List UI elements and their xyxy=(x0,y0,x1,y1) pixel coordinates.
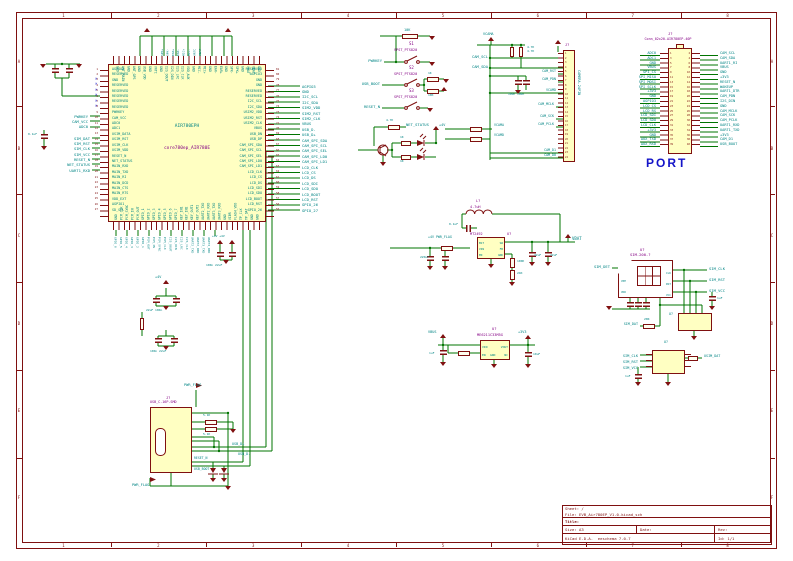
capacitor xyxy=(466,225,471,232)
port-part: Conn_02x20-AIR780EP-40P xyxy=(613,38,723,42)
power-label: +4V xyxy=(439,123,445,127)
gnd-symbol xyxy=(163,306,169,310)
title-block-title: Title: xyxy=(565,519,579,524)
net-label-stack-rotated: UART3_RXD UART3_TXD UART2_RXD UART2_TXD … xyxy=(112,237,211,271)
port-pin-numbers-right: 2 4 6 8 10 12 14 16 18 20 22 24 26 28 30… xyxy=(682,52,690,148)
gnd-symbol xyxy=(488,264,494,268)
main-ic-pins-right xyxy=(266,70,274,217)
resistor-value: 24K xyxy=(517,272,522,275)
capacitor-values: 100n 100n xyxy=(508,93,524,96)
gnd-symbol xyxy=(225,28,231,32)
net-label-stack: AGPIO3 GND I2C_SCL I2C_SDA SIM2_VDD SIM2… xyxy=(302,84,327,214)
power-labels: +4V +4V xyxy=(212,235,225,238)
sim-inside-left: VPP VDD xyxy=(621,276,626,298)
net-label: CAM_MCLK xyxy=(528,103,554,107)
sim-esd-ref: U? xyxy=(669,313,673,317)
resistor xyxy=(441,246,453,251)
main-ic-pin-names-top: GND VBAT VBAT GND SPK+ SPK- GND EAR+ EAR… xyxy=(114,66,261,110)
net-label: SIM_DET xyxy=(586,265,610,269)
sim-esd-body xyxy=(678,313,712,331)
port-pins-left xyxy=(660,53,668,149)
resistor-value: 1K xyxy=(428,72,432,75)
power-flag-label: +4V PWR_FLAG xyxy=(428,236,452,240)
capacitor xyxy=(635,374,642,379)
resistor-value: 4.7K xyxy=(386,119,393,122)
title-block-id: Id: 1/1 xyxy=(718,536,734,541)
resistor xyxy=(643,324,655,329)
resistor xyxy=(205,427,217,432)
capacitor-value: 1uF xyxy=(429,352,434,355)
net-label: USB_D- xyxy=(238,453,250,457)
resistor xyxy=(140,318,144,330)
button-part: SPST_PTS820 xyxy=(394,95,417,99)
net-label-stack: SIM_DAT SIM_RST SIM_CLK SIM_VCC RESET_N … xyxy=(60,136,90,173)
ldo-ref: U? xyxy=(492,327,497,331)
port-title: PORT xyxy=(646,156,687,170)
net-label: SIM_RST xyxy=(709,278,725,282)
net-label: CAM_SDA xyxy=(458,65,488,69)
title-block-file: File: EVB_Air780EP_V1.0.kicad_sch xyxy=(565,512,642,517)
net-label-stack-rotated: SPK+ SPK- EAR+ EAR- MIC+ MIC- VRTC VBAT xyxy=(160,30,203,56)
simesd-ref: U? xyxy=(664,341,668,345)
camera-connector-pins xyxy=(558,53,563,161)
power-arrow xyxy=(440,334,446,338)
net-label: NET_STATUS xyxy=(406,123,429,127)
capacitor-values: 100n 22uF xyxy=(150,350,166,353)
gnd-symbol xyxy=(76,64,82,68)
net-label-stack: PWRKEY CAM_VCC ADC0 xyxy=(62,114,88,130)
net-label: CAM_PCLK xyxy=(528,123,554,127)
resistor xyxy=(510,258,515,268)
dcdc-ic-value: MT2492 xyxy=(470,232,483,236)
gnd-symbol xyxy=(442,266,448,270)
main-ic-pin-numbers-right: 81 80 79 78 77 76 75 74 73 72 71 70 69 6… xyxy=(276,67,279,213)
resistor-value: 20R xyxy=(644,318,649,321)
resistor xyxy=(388,125,400,130)
gnd-symbol xyxy=(529,262,535,266)
schematic-sheet: 12345678 12345678 ABCDEF ABCDEF xyxy=(0,0,793,561)
capacitor-value: 220uF xyxy=(420,256,429,259)
port-left-nets: ADC0 ADC1 GND VBUS SPI_CS SPI_MISO SPI_M… xyxy=(610,51,656,147)
port-right-nets: CAM_SCL CAM_SDA UART1_RI VBUS GND +3V3 R… xyxy=(720,51,739,147)
gnd-symbol xyxy=(210,478,216,482)
gnd-symbol xyxy=(440,362,446,366)
capacitor xyxy=(440,350,447,355)
gnd-symbol xyxy=(555,40,561,44)
net-label: CAM_SCL xyxy=(458,55,488,59)
capacitor-value: 22uF xyxy=(550,254,557,257)
inductor-value: 4.7uH xyxy=(470,205,481,209)
capacitor xyxy=(523,80,530,85)
gnd-symbol xyxy=(225,486,231,490)
net-label: CAM_D0 xyxy=(534,154,556,158)
gnd-symbol xyxy=(427,108,433,112)
power-flag-label: PWR_FLAG xyxy=(184,383,201,387)
resistor-value: 10K xyxy=(404,28,410,32)
resistor xyxy=(402,34,418,39)
capacitor-value: 0.1uF xyxy=(449,223,458,226)
gnd-symbol xyxy=(491,364,497,368)
gnd-symbol xyxy=(443,79,449,83)
net-label: USB_D+ xyxy=(232,443,244,447)
capacitor xyxy=(66,68,73,73)
gnd-symbol xyxy=(709,306,715,310)
resistor-values: 4.7K 4.7K xyxy=(527,46,534,54)
capacitor-values: 22uF 100n xyxy=(146,309,162,312)
power-arrow xyxy=(565,234,571,238)
button-part: SPST_PTS820 xyxy=(394,48,417,52)
gnd-symbol xyxy=(223,260,229,264)
ldo-pins-left: VIN EN xyxy=(482,343,487,359)
net-label: RESET_N xyxy=(354,105,380,109)
sim-inside-right: CLK RST VCC xyxy=(662,268,671,301)
button-ref: S2 xyxy=(409,66,414,71)
net-label: PWRKEY xyxy=(358,59,382,63)
sim-contact-grid xyxy=(637,266,661,286)
net-label: USIM_DAT xyxy=(704,355,720,359)
title-block-col-divider xyxy=(636,525,637,533)
capacitor-value: 1uF xyxy=(625,375,630,378)
capacitor xyxy=(171,338,178,343)
dcdc-pins-left: BST VIN EN xyxy=(479,240,484,258)
power-label: VCAMA xyxy=(483,32,494,36)
port-ref: J? xyxy=(668,32,673,36)
capacitor xyxy=(41,134,48,139)
capacitor xyxy=(515,80,522,85)
no-connect-marks: × × × × × × xyxy=(95,76,97,108)
net-label: VCAMA xyxy=(494,124,504,128)
main-ic-pins-top xyxy=(113,56,261,64)
net-label: USB_BOOT xyxy=(350,82,380,86)
title-block-row-divider xyxy=(562,533,770,534)
net-label: VCAMD xyxy=(494,134,504,138)
gnd-symbol xyxy=(380,162,386,166)
main-ic-pins-bottom xyxy=(113,222,261,230)
capacitor xyxy=(155,338,162,343)
gnd-symbol xyxy=(429,62,435,66)
button-ref: S3 xyxy=(409,89,414,94)
main-ic-name: AIR780EPH xyxy=(108,124,266,129)
gnd-symbol xyxy=(635,382,641,386)
resistor xyxy=(470,127,482,132)
power-arrow xyxy=(488,37,494,41)
title-block-date: Date: xyxy=(640,527,652,532)
capacitor xyxy=(442,256,449,261)
gnd-symbol xyxy=(691,336,697,340)
resistor-value: 1K xyxy=(400,136,404,139)
inductor-ref: L? xyxy=(476,199,480,203)
camera-pin-numbers: 1 2 3 4 5 6 7 8 9 10 11 12 13 14 15 16 1… xyxy=(565,52,568,160)
gnd-symbol xyxy=(221,478,227,482)
net-label-stack: SIM_CLK SIM_RST SIM_VCC xyxy=(606,353,638,371)
power-label: +4V xyxy=(155,275,161,279)
gnd-symbol xyxy=(144,28,150,32)
main-ic-value: core780ep_AIR780E xyxy=(108,146,266,151)
ldo-value: ME6211C33M5G xyxy=(477,333,503,337)
capacitor-value: 22uF xyxy=(534,254,541,257)
net-label: SIM_DAT xyxy=(614,323,638,327)
gnd-symbol xyxy=(665,382,671,386)
capacitor xyxy=(153,298,160,303)
main-ic-pins-left xyxy=(100,70,108,217)
resistor-value: 100K xyxy=(517,260,524,263)
capacitor xyxy=(709,296,716,301)
net-label: CAM_RST xyxy=(530,70,556,74)
gnd-symbol xyxy=(525,364,531,368)
button-ref: S1 xyxy=(409,42,414,47)
port-pin-numbers-left: 1 3 5 7 9 11 13 15 17 19 21 23 25 27 29 … xyxy=(670,52,673,148)
title-block-tool: KiCad E.D.A. eeschema 7.0.7 xyxy=(565,536,631,541)
resistor xyxy=(427,77,439,82)
net-label: RESET_N xyxy=(194,457,207,461)
gnd-symbol xyxy=(509,282,515,286)
sim-value: SIM-200-? xyxy=(630,253,651,257)
gnd-symbol xyxy=(230,429,236,433)
resistor xyxy=(510,270,515,280)
gnd-symbol xyxy=(545,262,551,266)
resistor xyxy=(458,351,470,356)
capacitor xyxy=(627,302,634,307)
resistor xyxy=(510,47,514,57)
net-label: VCAMD xyxy=(532,89,556,93)
capacitor-value: 10uF xyxy=(533,353,540,356)
capacitor-value: 0.1uF xyxy=(28,133,37,136)
capacitor xyxy=(635,302,642,307)
net-label: SIM_CLK xyxy=(709,267,725,271)
dcdc-pins-right: SW FB GND xyxy=(490,240,503,258)
title-block-row-divider xyxy=(562,525,770,526)
resistor xyxy=(401,141,411,146)
power-label: VBUS xyxy=(428,330,436,334)
net-label: USB_BOOT xyxy=(194,468,209,472)
resistor-value: 10K xyxy=(428,94,433,97)
resistor xyxy=(688,356,698,361)
title-block-row-divider xyxy=(562,517,770,518)
dcdc-ic-ref: U? xyxy=(507,232,511,236)
resistor xyxy=(519,47,523,57)
power-arrow xyxy=(525,335,531,339)
capacitor xyxy=(525,352,532,357)
main-ic-pin-names-bottom: GND PCM_CLK PCM_SYNC PCM_IN PCM_OUT GPIO… xyxy=(114,176,261,220)
ldo-pins-right: VOUT NC xyxy=(495,343,508,359)
usb-connector-outline xyxy=(155,428,166,456)
power-arrow xyxy=(441,87,447,91)
title-block-rev: Rev: xyxy=(718,527,727,532)
net-label: CAM_SCK xyxy=(530,115,554,119)
power-arrow xyxy=(163,280,169,284)
gnd-symbol xyxy=(41,146,47,150)
gnd-symbol xyxy=(40,64,46,68)
camera-ref: J? xyxy=(565,43,569,47)
resistor xyxy=(470,137,482,142)
gnd-symbol xyxy=(429,36,435,40)
capacitor-value: 1uF xyxy=(717,297,722,300)
power-label: VBAT xyxy=(572,237,582,242)
port-pins-right xyxy=(692,53,700,149)
simesd-pins-left xyxy=(646,354,652,368)
net-label: SIM_VCC xyxy=(709,289,725,293)
power-arrow xyxy=(229,240,235,244)
capacitor xyxy=(217,252,224,257)
ldo-pin-gnd: GND xyxy=(490,354,495,357)
simesd-body xyxy=(652,350,685,374)
title-block-sheet: Sheet: / xyxy=(565,506,584,511)
capacitor xyxy=(52,68,59,73)
power-arrow xyxy=(217,240,223,244)
button-part: SPST_PTS820 xyxy=(394,72,417,76)
net-label: CAM_PDN xyxy=(530,78,556,82)
resistor-value: 5.1K xyxy=(203,433,210,436)
gnd-symbol xyxy=(606,306,612,310)
resistor-value: 1K xyxy=(400,160,404,163)
port-body-notch xyxy=(676,44,684,49)
power-flag-label: PWR_FLAG xyxy=(132,483,149,487)
title-block-size: Size: A3 xyxy=(565,527,584,532)
camera-value: CAMERA-24PIN xyxy=(577,70,581,160)
resistor-value: 5.1K xyxy=(203,414,210,417)
capacitor xyxy=(643,302,650,307)
gnd-symbol xyxy=(427,266,433,270)
usb-part: USB_C-16P-SMD xyxy=(150,401,177,405)
power-label: +3V3 xyxy=(518,330,526,334)
title-block-col-divider xyxy=(714,525,715,543)
capacitor-values: 100n 22uF xyxy=(206,264,222,267)
capacitor xyxy=(229,252,236,257)
capacitor xyxy=(173,298,180,303)
resistor xyxy=(205,420,217,425)
